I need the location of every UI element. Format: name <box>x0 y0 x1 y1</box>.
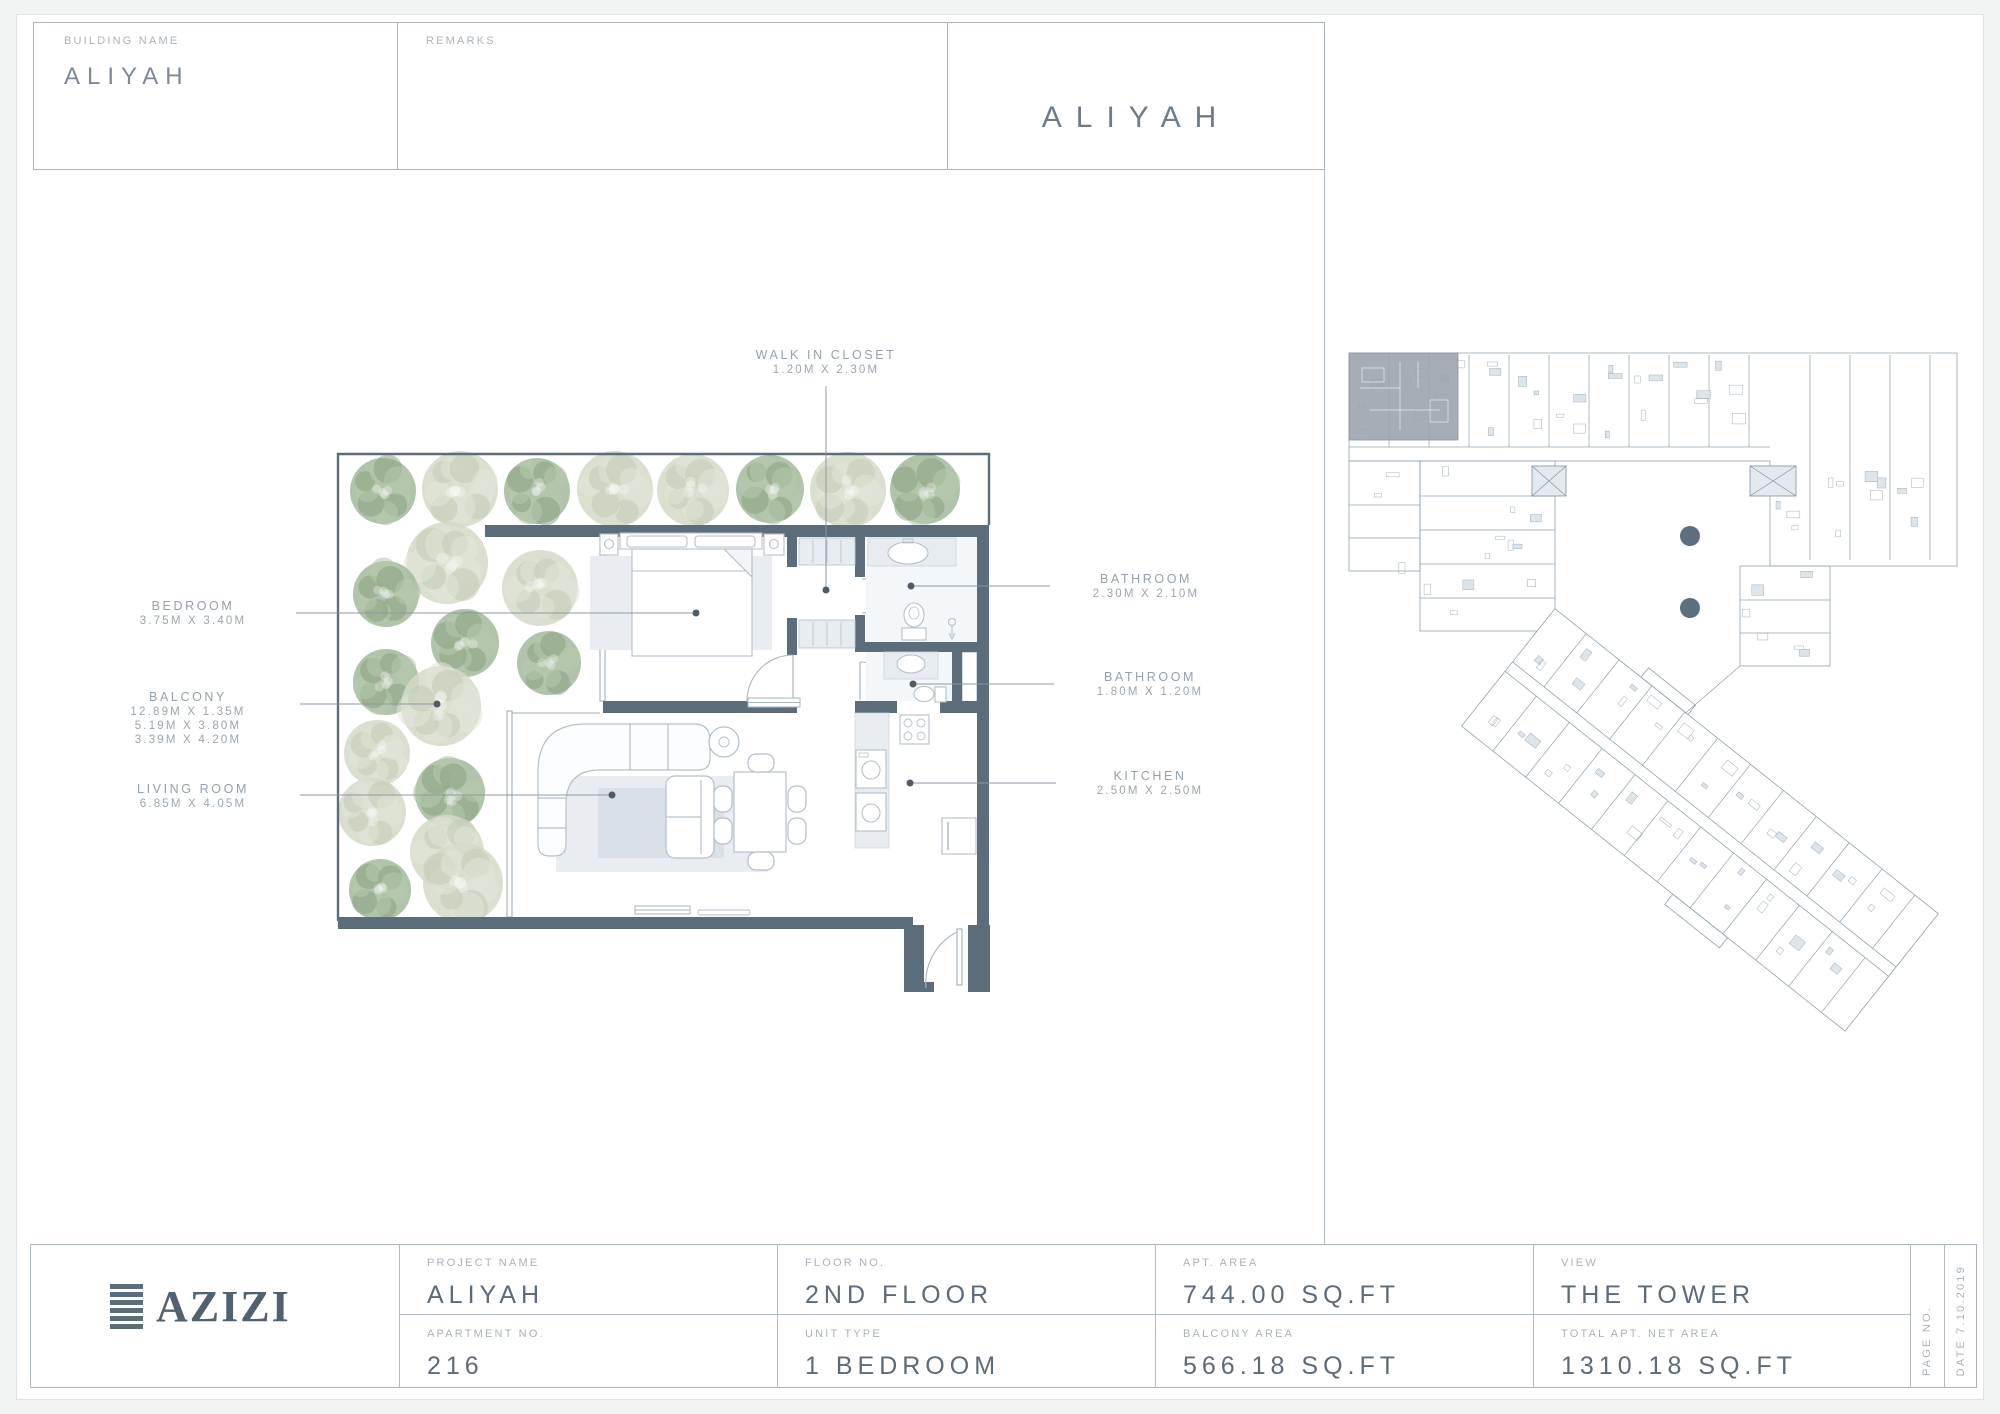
tree-icon <box>657 453 729 526</box>
bathroom1-fixtures <box>866 537 977 642</box>
nightstand <box>600 534 618 555</box>
tree-icon <box>736 455 804 525</box>
nightstand <box>764 534 784 555</box>
side-table <box>709 727 739 757</box>
bedroom-door-arc <box>747 655 793 702</box>
tree-icon <box>890 454 960 527</box>
key-plan-wing <box>1453 599 1945 1041</box>
sheet-divider-line <box>1324 170 1325 1244</box>
remarks-box: REMARKS <box>397 22 948 170</box>
bed <box>632 549 752 656</box>
azizi-logo-text: AZIZI <box>156 1281 291 1332</box>
label-living-room: LIVING ROOM 6.85M X 4.05M <box>93 782 293 811</box>
entry-door-arc <box>926 932 957 988</box>
dining-chair <box>748 754 774 772</box>
tree-icon <box>810 452 886 528</box>
bedroom-furniture <box>590 533 784 656</box>
stove <box>900 715 929 744</box>
footer-divider <box>777 1244 778 1388</box>
tree-icon <box>349 859 411 921</box>
tv-console <box>698 910 750 915</box>
fridge <box>942 818 976 854</box>
label-kitchen: KITCHEN 2.50M X 2.50M <box>1050 769 1250 798</box>
label-bathroom-2: BATHROOM 1.80M X 1.20M <box>1050 670 1250 699</box>
dining-chair <box>748 852 774 870</box>
label-balcony: BALCONY 12.89M X 1.35M 5.19M X 3.80M 3.3… <box>78 690 298 747</box>
plan-drawing <box>0 0 2000 1414</box>
dining-chair <box>788 818 806 844</box>
tree-icon <box>504 458 570 525</box>
tree-icon <box>502 550 580 626</box>
label-walk-in-closet: WALK IN CLOSET 1.20M X 2.30M <box>726 348 926 377</box>
footer-divider <box>399 1244 400 1388</box>
washer <box>856 750 886 788</box>
footer-mid-divider <box>399 1314 1910 1315</box>
oven <box>856 793 886 831</box>
tree-icon <box>350 455 416 526</box>
date-strip: DATE 7.10.2019 <box>1944 1244 1977 1388</box>
floorplan-sheet: BUILDING NAME ALIYAH REMARKS ALIYAH WALK… <box>0 0 2000 1414</box>
key-plan <box>1349 353 1957 1041</box>
courtyard-dot <box>1680 526 1700 546</box>
remarks-label: REMARKS <box>426 35 496 47</box>
page-title: ALIYAH <box>948 101 1324 135</box>
tree-icon <box>517 631 581 695</box>
tree-icon <box>422 451 498 527</box>
courtyard-dot <box>1680 598 1700 618</box>
dining-chair <box>714 818 732 844</box>
dining-chair <box>714 786 732 812</box>
building-name-label: BUILDING NAME <box>64 35 179 47</box>
page-no-strip: PAGE NO. <box>1910 1244 1944 1388</box>
tree-icon <box>577 451 654 527</box>
building-name-value: ALIYAH <box>64 63 190 91</box>
dining-chair <box>788 786 806 812</box>
azizi-logo-bars-icon <box>110 1282 143 1331</box>
toilet <box>914 687 934 702</box>
label-bedroom: BEDROOM 3.75M X 3.40M <box>93 599 293 628</box>
title-box: ALIYAH <box>947 22 1325 170</box>
footer-divider <box>1155 1244 1156 1388</box>
azizi-logo: AZIZI <box>110 1281 291 1332</box>
footer-divider <box>1533 1244 1534 1388</box>
tree-icon <box>344 720 410 786</box>
building-name-box: BUILDING NAME ALIYAH <box>33 22 398 170</box>
bathroom2-fixtures <box>866 652 952 702</box>
tree-icon <box>338 778 406 846</box>
tree-icon <box>423 843 503 926</box>
dining-table <box>734 772 786 852</box>
highlighted-unit <box>1349 353 1458 440</box>
living-furniture <box>538 724 806 915</box>
label-bathroom-1: BATHROOM 2.30M X 2.10M <box>1046 572 1246 601</box>
